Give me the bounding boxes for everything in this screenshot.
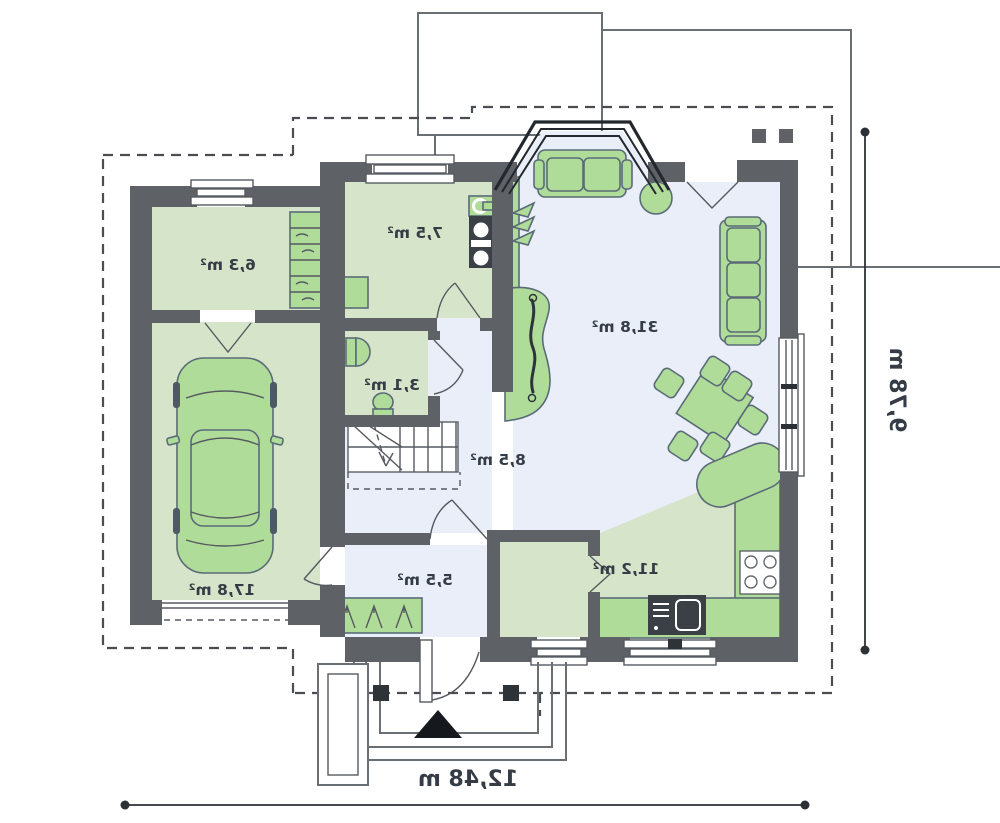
kitchen-window-left: [531, 640, 587, 665]
kitchen-window-right: [624, 639, 716, 665]
terrace-window: [779, 334, 804, 476]
corridor-floor: [437, 318, 480, 330]
washbasin-icon: [346, 338, 370, 366]
floor-plan-drawing: 6,3 m² 7,5 m² 31,8 m² 3,1 m² 8,5 m² 5,5 …: [0, 0, 1000, 823]
garage-label: 17,8 m²: [189, 581, 256, 599]
kitchen-sink-icon: [648, 595, 706, 635]
utility-room-label: 6,3 m²: [200, 256, 256, 274]
pantry-floor: [500, 542, 588, 637]
utility-window: [191, 180, 253, 205]
wc-label: 3,1 m²: [364, 376, 420, 394]
laundry-window: [366, 155, 454, 183]
dimension-bottom: 12,48 m: [121, 767, 810, 810]
car-icon: [166, 358, 283, 573]
sofa-right-icon: [720, 217, 766, 345]
vestibule-label: 5,5 m²: [397, 571, 453, 589]
porch-column-right: [503, 685, 519, 701]
shelving-unit-icon: [290, 212, 323, 308]
porch-pillar-inner: [328, 674, 358, 775]
toilet-icon: [373, 393, 393, 417]
width-dimension-label: 12,48 m: [418, 767, 518, 792]
living-room-label: 31,8 m²: [592, 318, 659, 336]
entrance-arrow-icon: [414, 710, 462, 738]
depth-dimension-label: 9,78 m: [884, 348, 909, 433]
chimney-outline: [418, 13, 602, 135]
dimension-right: 9,78 m: [861, 128, 910, 655]
floor-plan-page: 6,3 m² 7,5 m² 31,8 m² 3,1 m² 8,5 m² 5,5 …: [0, 0, 1000, 823]
hall-label: 8,5 m²: [470, 451, 526, 469]
utility-sink-icon: [469, 196, 493, 216]
wardrobe-icon: [334, 598, 422, 633]
garage-door-opening: [162, 601, 288, 624]
laundry-room-label: 7,5 m²: [387, 224, 443, 242]
stove-icon: [740, 551, 780, 594]
kitchen-label: 11,2 m²: [593, 560, 660, 578]
sofa-top-icon: [534, 150, 632, 197]
roof-posts: [752, 129, 793, 143]
appliance-counter-icon: [469, 216, 493, 268]
porch-column-left: [373, 685, 389, 701]
